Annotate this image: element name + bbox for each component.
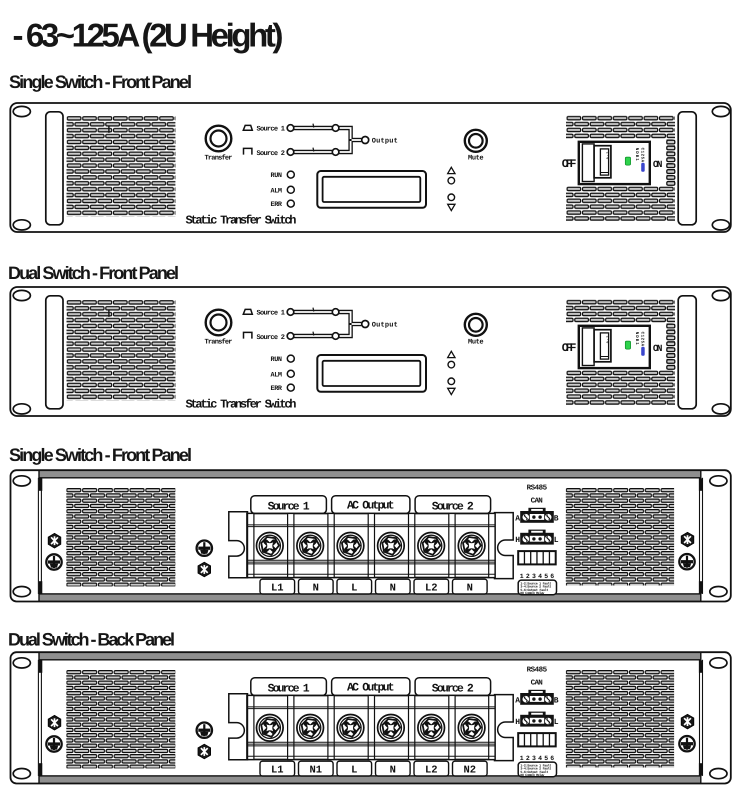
svg-text:- 63~125A (2U Height): - 63~125A (2U Height) bbox=[13, 17, 284, 54]
svg-text:N: N bbox=[390, 765, 396, 777]
svg-text:Dual Switch - Back Panel: Dual Switch - Back Panel bbox=[8, 629, 175, 649]
svg-text:L2: L2 bbox=[425, 765, 438, 777]
svg-text:L: L bbox=[351, 765, 357, 777]
svg-text:L1: L1 bbox=[271, 765, 284, 777]
svg-text:N: N bbox=[467, 583, 473, 595]
svg-text:L: L bbox=[351, 583, 357, 595]
svg-text:N: N bbox=[313, 583, 319, 595]
svg-text:L2: L2 bbox=[425, 583, 438, 595]
svg-text:Dual Switch - Front Panel: Dual Switch - Front Panel bbox=[8, 263, 179, 283]
svg-text:Single Switch - Front Panel: Single Switch - Front Panel bbox=[9, 445, 192, 465]
svg-text:N: N bbox=[390, 583, 396, 595]
svg-text:N1: N1 bbox=[309, 765, 322, 777]
svg-text:L1: L1 bbox=[271, 583, 284, 595]
svg-text:Single Switch - Front Panel: Single Switch - Front Panel bbox=[9, 72, 192, 92]
svg-text:N2: N2 bbox=[463, 765, 476, 777]
